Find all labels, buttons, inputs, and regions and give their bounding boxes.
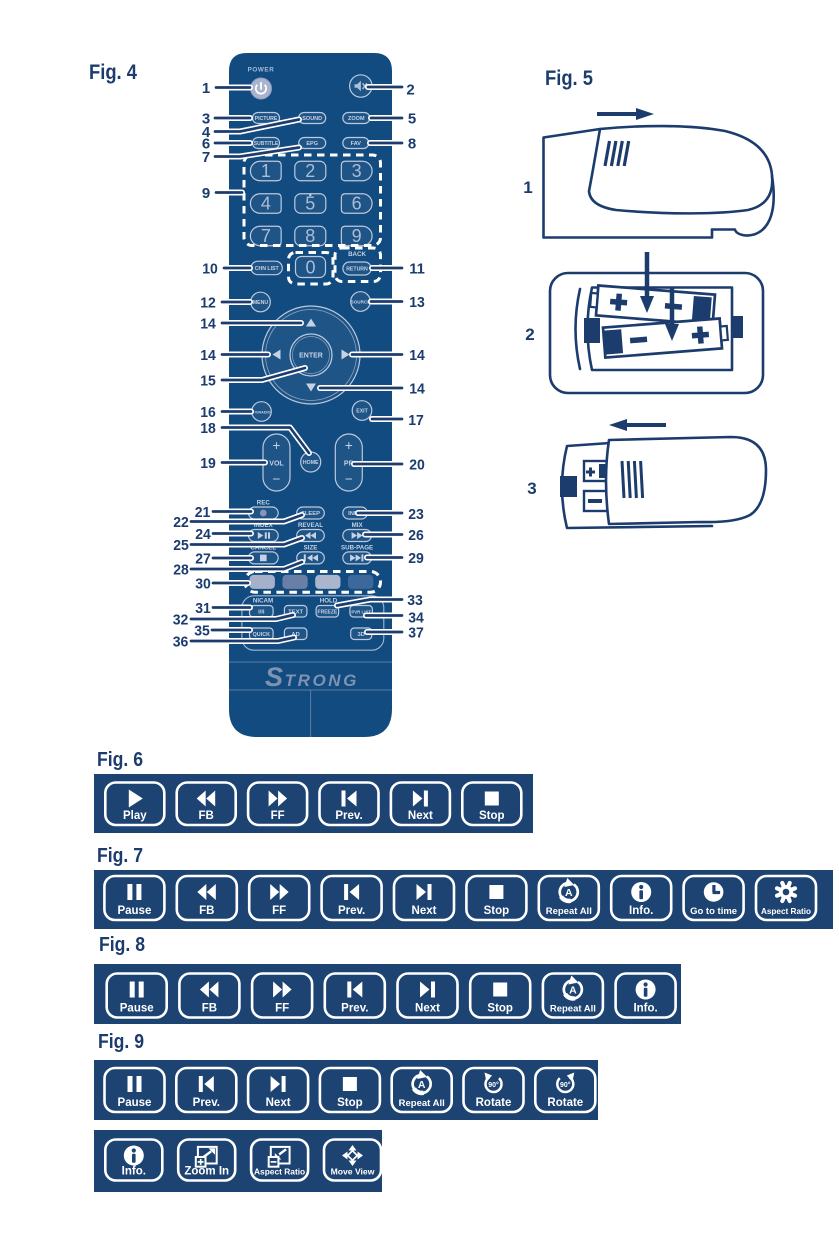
svg-text:27: 27	[195, 551, 211, 568]
svg-text:FF: FF	[272, 905, 286, 917]
svg-text:FF: FF	[275, 1003, 289, 1015]
svg-text:PICTURE: PICTURE	[255, 116, 278, 122]
svg-text:22: 22	[173, 514, 189, 531]
svg-text:26: 26	[408, 527, 424, 544]
svg-text:7: 7	[202, 149, 210, 166]
svg-text:Stop: Stop	[484, 905, 510, 917]
svg-text:BACK: BACK	[348, 251, 366, 258]
svg-text:Rotate: Rotate	[476, 1097, 512, 1109]
svg-text:Info.: Info.	[122, 1166, 146, 1178]
svg-text:20: 20	[409, 457, 425, 474]
svg-text:Fig. 6: Fig. 6	[97, 749, 143, 771]
svg-text:3D: 3D	[357, 632, 364, 638]
svg-text:Next: Next	[415, 1003, 440, 1015]
svg-text:14: 14	[409, 347, 425, 364]
svg-text:Next: Next	[412, 905, 437, 917]
svg-text:REC: REC	[257, 500, 271, 507]
svg-text:2: 2	[406, 82, 414, 99]
svg-text:7: 7	[261, 226, 271, 246]
svg-text:23: 23	[408, 506, 424, 523]
svg-text:32: 32	[173, 612, 189, 629]
svg-text:SUB-PAGE: SUB-PAGE	[341, 545, 373, 552]
svg-text:Repeat All: Repeat All	[550, 1004, 596, 1015]
svg-text:CHN LIST: CHN LIST	[255, 266, 280, 272]
svg-text:33: 33	[407, 592, 423, 609]
svg-text:Zoom In: Zoom In	[184, 1166, 229, 1178]
svg-text:MIX: MIX	[352, 522, 364, 529]
svg-text:3: 3	[527, 479, 536, 498]
svg-text:FF: FF	[271, 810, 285, 822]
svg-text:SIZE: SIZE	[304, 545, 318, 552]
svg-text:6: 6	[352, 194, 362, 214]
svg-text:8: 8	[305, 226, 315, 246]
svg-text:SOURCE: SOURCE	[351, 300, 371, 305]
svg-text:5: 5	[305, 194, 315, 214]
svg-text:Pause: Pause	[118, 1097, 152, 1109]
svg-text:Next: Next	[408, 810, 433, 822]
svg-text:29: 29	[408, 550, 424, 567]
svg-text:HOME: HOME	[303, 460, 319, 466]
svg-text:+: +	[273, 438, 281, 453]
svg-text:Stop: Stop	[337, 1097, 363, 1109]
svg-text:A: A	[565, 887, 573, 899]
svg-text:14: 14	[200, 347, 216, 364]
svg-text:Info.: Info.	[633, 1003, 657, 1015]
svg-text:8: 8	[408, 136, 416, 153]
svg-text:EPG: EPG	[306, 141, 318, 147]
svg-text:A: A	[418, 1079, 426, 1091]
svg-text:9: 9	[352, 226, 362, 246]
svg-text:Prev.: Prev.	[193, 1097, 220, 1109]
svg-text:31: 31	[195, 600, 211, 617]
svg-text:Aspect Ratio: Aspect Ratio	[761, 907, 811, 916]
svg-text:A: A	[569, 985, 577, 997]
svg-text:Pause: Pause	[120, 1003, 154, 1015]
svg-text:Stop: Stop	[487, 1003, 513, 1015]
svg-text:Fig. 9: Fig. 9	[98, 1031, 144, 1053]
svg-text:37: 37	[408, 625, 424, 642]
svg-text:+: +	[345, 438, 353, 453]
svg-text:FB: FB	[202, 1003, 217, 1015]
svg-text:9: 9	[202, 185, 210, 202]
svg-text:28: 28	[173, 562, 189, 579]
svg-text:19: 19	[200, 455, 216, 472]
svg-text:36: 36	[173, 634, 189, 651]
svg-text:10: 10	[202, 261, 218, 278]
svg-text:14: 14	[409, 381, 425, 398]
svg-text:Next: Next	[266, 1097, 291, 1109]
svg-text:Aspect Ratio: Aspect Ratio	[254, 1167, 305, 1177]
svg-text:Stop: Stop	[479, 810, 505, 822]
svg-text:QUICK: QUICK	[253, 632, 270, 638]
svg-text:Fig. 4: Fig. 4	[89, 61, 137, 84]
svg-text:1: 1	[202, 80, 210, 97]
svg-text:4: 4	[261, 194, 271, 214]
svg-text:Go to time: Go to time	[690, 906, 737, 917]
svg-text:EXIT: EXIT	[356, 409, 368, 415]
svg-text:Rotate: Rotate	[547, 1097, 583, 1109]
svg-text:35: 35	[194, 623, 210, 640]
svg-text:0: 0	[305, 258, 315, 278]
svg-text:16: 16	[200, 404, 216, 421]
svg-text:Prev.: Prev.	[341, 1003, 368, 1015]
svg-text:11: 11	[409, 261, 425, 278]
svg-text:VOL: VOL	[269, 460, 284, 467]
svg-text:12: 12	[200, 295, 216, 312]
svg-text:FB: FB	[199, 905, 214, 917]
svg-text:30: 30	[195, 576, 211, 593]
svg-text:90°: 90°	[560, 1081, 571, 1089]
svg-text:14: 14	[200, 316, 216, 333]
svg-text:Fig. 7: Fig. 7	[97, 845, 143, 867]
svg-text:FREEZE: FREEZE	[318, 609, 338, 615]
svg-text:SOUND: SOUND	[302, 116, 322, 122]
svg-text:ZOOM: ZOOM	[348, 116, 365, 122]
svg-text:FB: FB	[199, 810, 214, 822]
svg-text:Prev.: Prev.	[335, 810, 362, 822]
svg-text:Fig. 8: Fig. 8	[99, 934, 145, 956]
svg-text:I/II: I/II	[258, 609, 265, 615]
svg-text:Pause: Pause	[117, 905, 151, 917]
svg-text:RETURN: RETURN	[346, 267, 368, 273]
svg-text:1: 1	[523, 178, 532, 197]
svg-text:21: 21	[195, 504, 211, 521]
svg-text:90°: 90°	[488, 1081, 499, 1089]
svg-text:−: −	[345, 472, 353, 487]
svg-text:Prev.: Prev.	[338, 905, 365, 917]
svg-text:Move View: Move View	[331, 1167, 375, 1177]
svg-text:Fig. 5: Fig. 5	[545, 67, 593, 90]
svg-text:Repeat All: Repeat All	[399, 1098, 445, 1109]
svg-text:Repeat All: Repeat All	[546, 906, 592, 917]
svg-text:TV/RADIO: TV/RADIO	[252, 411, 270, 415]
svg-text:1: 1	[261, 161, 271, 181]
svg-text:2: 2	[305, 161, 315, 181]
svg-text:24: 24	[195, 526, 211, 543]
svg-text:POWER: POWER	[248, 67, 275, 74]
svg-text:REVEAL: REVEAL	[298, 522, 323, 529]
svg-text:Info.: Info.	[629, 905, 653, 917]
svg-text:FAV: FAV	[351, 141, 362, 147]
svg-text:SUBTITLE: SUBTITLE	[254, 141, 279, 147]
svg-text:15: 15	[200, 373, 216, 390]
svg-text:13: 13	[409, 294, 425, 311]
svg-text:NICAM: NICAM	[253, 598, 273, 605]
svg-text:3: 3	[352, 161, 362, 181]
svg-text:2: 2	[525, 325, 534, 344]
svg-text:5: 5	[408, 111, 416, 128]
svg-text:Play: Play	[123, 810, 147, 822]
svg-text:18: 18	[200, 420, 216, 437]
svg-text:−: −	[273, 472, 281, 487]
svg-text:MENU: MENU	[253, 300, 269, 306]
svg-text:17: 17	[408, 412, 424, 429]
svg-text:ENTER: ENTER	[299, 353, 323, 360]
svg-text:25: 25	[173, 537, 189, 554]
